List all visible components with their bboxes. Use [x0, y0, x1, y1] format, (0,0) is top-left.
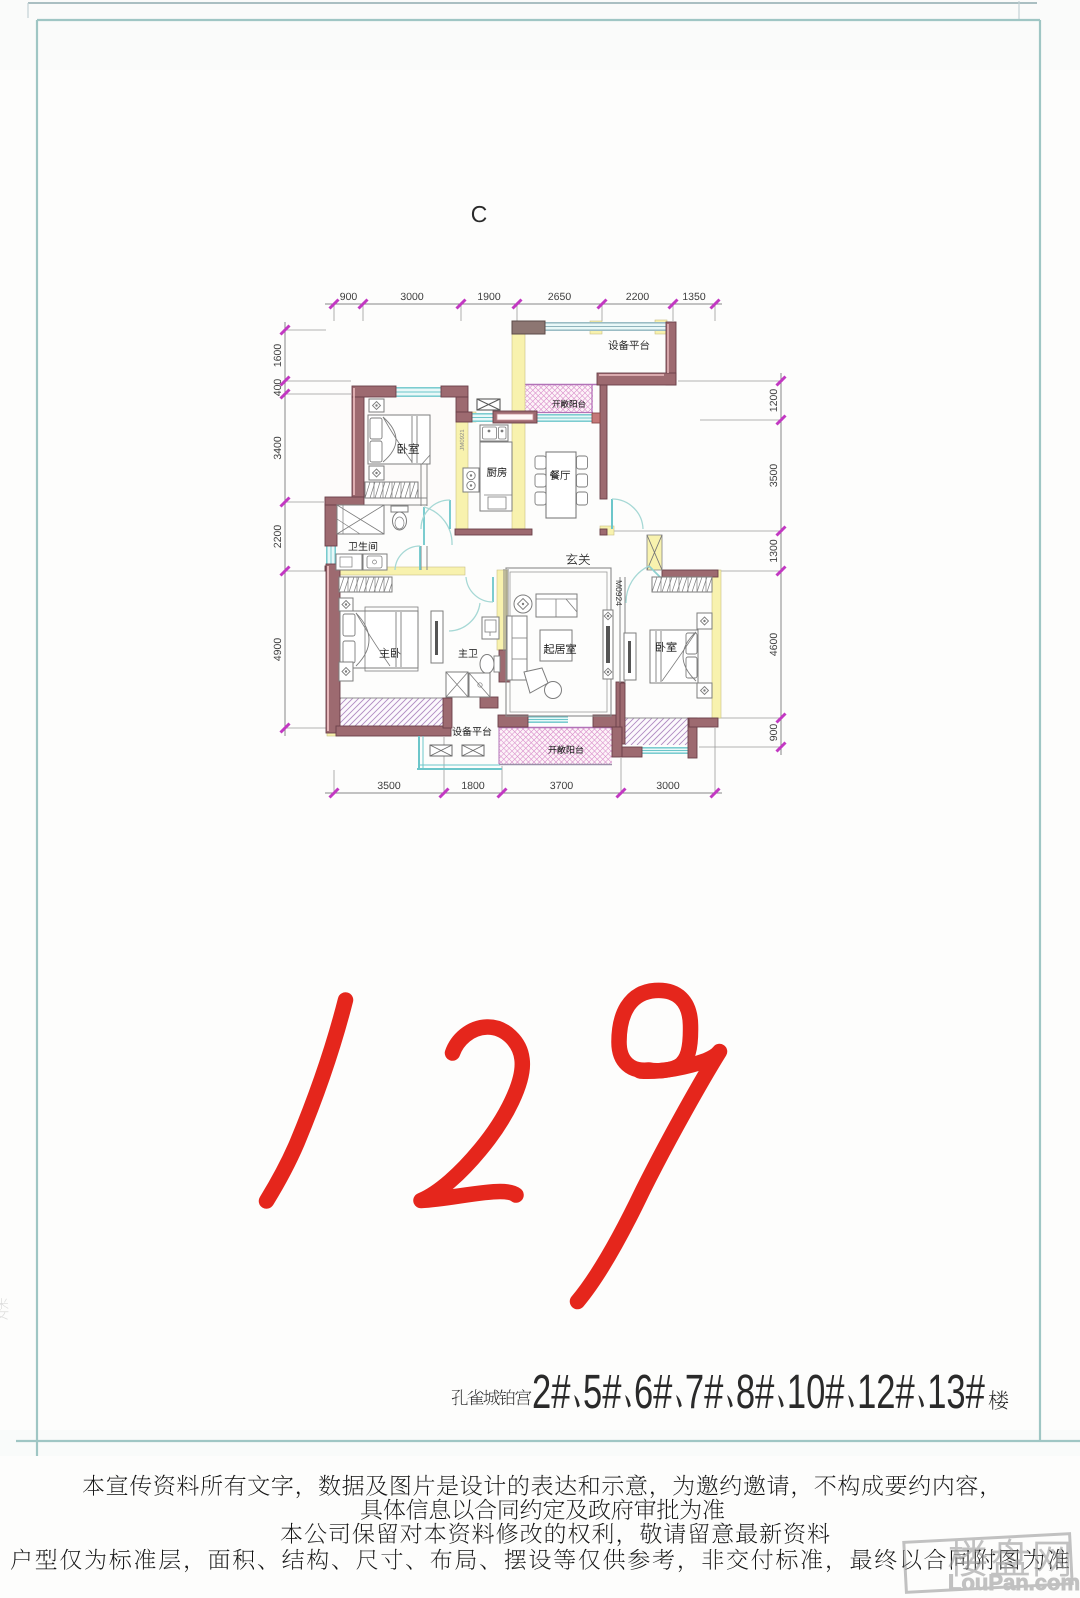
- svg-text:LouPan.com: LouPan.com: [948, 1570, 1080, 1595]
